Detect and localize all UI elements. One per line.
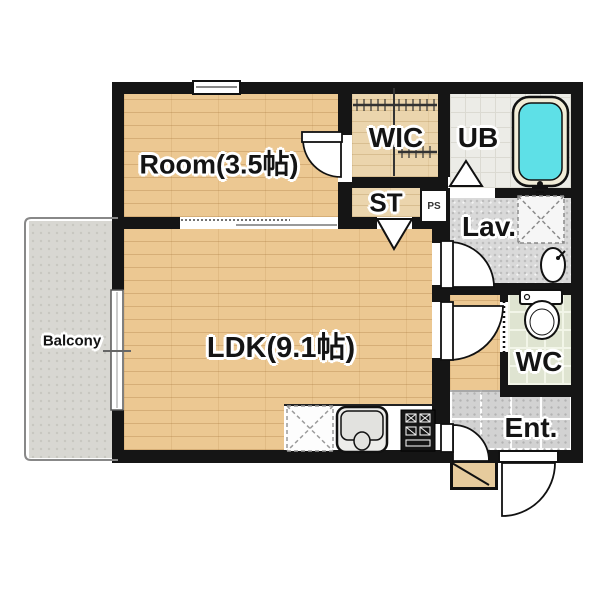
ps-shaft: PS	[422, 191, 446, 221]
wic-label: WIC	[369, 122, 423, 154]
door-opening	[500, 302, 508, 352]
wall	[338, 82, 352, 135]
door-opening	[432, 424, 450, 450]
window-icon	[193, 81, 240, 94]
balcony-label: Balcony	[43, 333, 101, 350]
door-opening	[432, 302, 450, 358]
kitchen-counter	[284, 404, 432, 452]
wc-label: WC	[516, 346, 563, 378]
wall	[571, 82, 583, 463]
st-label: ST	[369, 188, 402, 219]
wall	[495, 188, 571, 198]
ps-label: PS	[427, 201, 440, 212]
wall	[432, 285, 450, 302]
wall	[338, 217, 377, 229]
lav-label: Lav.	[462, 211, 516, 243]
wall	[338, 177, 448, 188]
wall	[432, 358, 450, 424]
ldk-label: LDK(9.1帖)	[207, 324, 355, 366]
wall	[432, 229, 450, 243]
wall	[500, 385, 583, 397]
door-opening	[450, 188, 495, 198]
room-label: Room(3.5帖)	[139, 143, 298, 182]
floor-plan: PS	[0, 0, 600, 600]
door-opening	[432, 243, 450, 285]
entrance-door-opening	[500, 450, 557, 463]
wall	[557, 450, 583, 463]
wall	[450, 283, 583, 295]
ent-label: Ent.	[505, 412, 558, 444]
ub-label: UB	[458, 122, 498, 154]
hall-floor	[450, 295, 500, 392]
wall	[112, 82, 124, 290]
wall	[124, 217, 180, 229]
sliding-door-opening	[180, 217, 338, 229]
wall	[112, 82, 193, 94]
wall	[500, 295, 508, 302]
wall	[112, 450, 500, 463]
entrance-step-icon	[450, 461, 498, 490]
wall	[500, 352, 508, 385]
wall	[240, 82, 583, 94]
door-opening	[338, 135, 352, 182]
wall	[438, 94, 450, 177]
